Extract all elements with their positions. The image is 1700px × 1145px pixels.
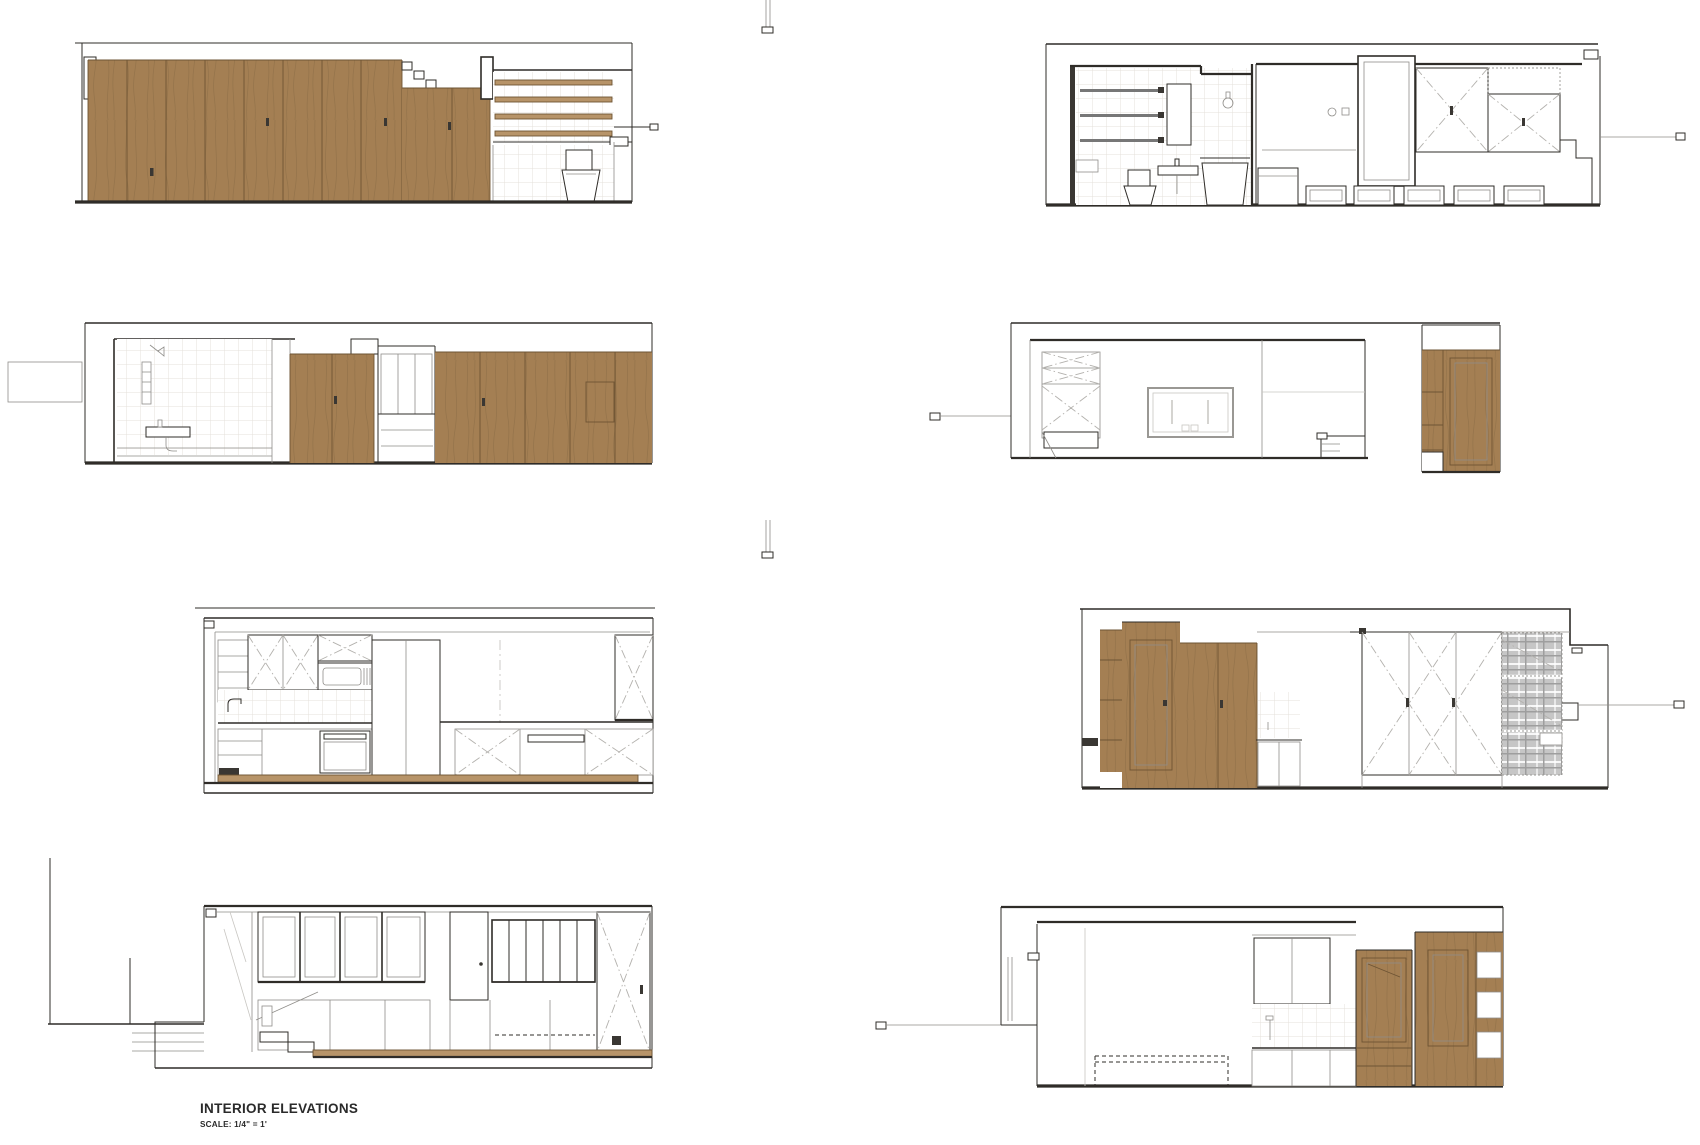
bathtub <box>1200 158 1250 205</box>
shower-room <box>114 339 295 463</box>
section-marker <box>762 520 773 558</box>
base-millwork <box>256 992 621 1052</box>
island-cabinets <box>455 729 653 775</box>
elevation-2-bathroom-and-bed-wall <box>1046 44 1685 205</box>
elevation-1-wood-partition-wall <box>75 0 773 202</box>
sheet-title: INTERIOR ELEVATIONS <box>200 1101 358 1116</box>
wood-cabinet-doors <box>1100 622 1257 788</box>
base-cabinets <box>218 729 372 775</box>
plaid-bed-nook <box>1502 633 1562 775</box>
elevation-5-kitchen-wall <box>195 608 655 793</box>
interior-elevations-drawing: INTERIOR ELEVATIONS SCALE: 1/4" = 1' <box>0 0 1700 1145</box>
elevation-7-window-wall-entry <box>48 858 652 1068</box>
title-block: INTERIOR ELEVATIONS SCALE: 1/4" = 1' <box>200 1101 358 1129</box>
wood-panel-wall <box>88 60 402 202</box>
corner-shelf <box>1317 433 1365 458</box>
wood-paneling-shelves <box>1415 932 1503 1086</box>
mullioned-windows <box>492 920 595 982</box>
freestanding-wood-cabinet <box>1422 325 1500 472</box>
kitchenette <box>1256 692 1302 786</box>
kitchenette <box>1252 935 1356 1086</box>
crossed-wardrobe-doors <box>1350 628 1502 788</box>
elevation-6-wardrobe-and-bed-nook <box>1080 609 1684 788</box>
mirror-cabinet <box>1167 84 1191 145</box>
upper-hatch-cabinet <box>1488 68 1560 94</box>
clerestory-windows <box>258 912 425 982</box>
loft-stair-slats <box>493 72 632 146</box>
drawing-sheet: INTERIOR ELEVATIONS SCALE: 1/4" = 1' <box>0 0 1700 1145</box>
entry-door <box>450 912 488 1000</box>
microwave <box>318 663 372 690</box>
wall-frame-tv <box>1148 388 1233 437</box>
door-frame-column <box>1358 56 1415 186</box>
backsplash <box>218 690 372 723</box>
pass-through-opening <box>378 346 435 463</box>
elevation-4-media-wall <box>930 323 1500 472</box>
elevation-3-shower-and-wood-doors <box>8 323 652 463</box>
elevation-8-bed-and-kitchenette-wall <box>876 907 1503 1086</box>
wardrobe-doors <box>1416 68 1560 152</box>
bed-dashed-outline <box>1095 1056 1228 1086</box>
bathroom <box>1070 66 1252 205</box>
scale-note: SCALE: 1/4" = 1' <box>200 1120 267 1129</box>
framed-wood-cabinet <box>1356 950 1412 1086</box>
toilet-alcove <box>493 142 614 202</box>
storage-unit <box>1042 352 1100 458</box>
